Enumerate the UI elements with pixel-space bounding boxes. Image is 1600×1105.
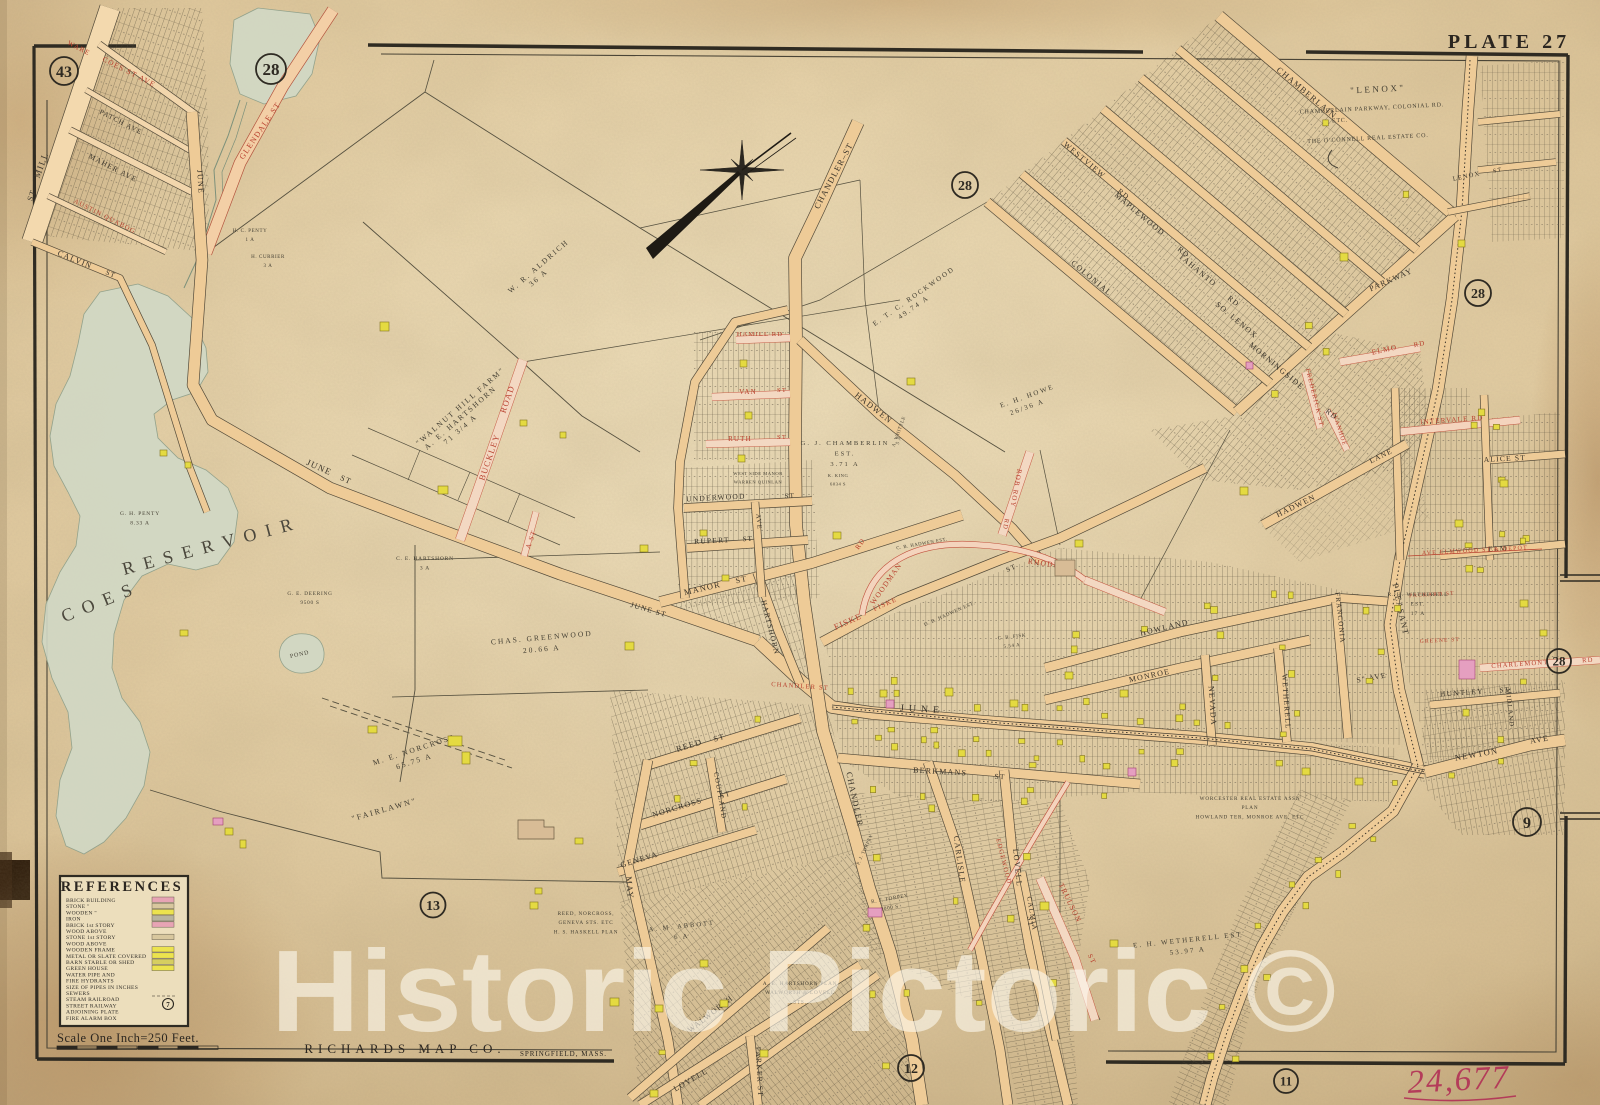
- svg-text:ST: ST: [784, 492, 795, 501]
- svg-text:ETC.: ETC.: [1332, 118, 1348, 125]
- svg-text:9: 9: [1523, 815, 1531, 832]
- svg-text:RUTH: RUTH: [728, 435, 752, 443]
- svg-text:BRICK BUILDING: BRICK BUILDING: [66, 898, 116, 904]
- svg-text:STONE 1st STORY: STONE 1st STORY: [66, 935, 116, 941]
- svg-text:JUNE: JUNE: [195, 169, 206, 194]
- svg-text:G. J. CHAMBERLIN: G. J. CHAMBERLIN: [801, 440, 890, 447]
- svg-text:ST: ST: [742, 535, 753, 544]
- svg-text:Historic Pictoric ©: Historic Pictoric ©: [271, 926, 1336, 1056]
- svg-text:HOWLAND TER, MONROE AVE, ETC: HOWLAND TER, MONROE AVE, ETC: [1196, 814, 1305, 820]
- svg-text:EST.: EST.: [835, 451, 856, 458]
- svg-text:8.33 A: 8.33 A: [130, 521, 149, 527]
- svg-text:SIZE OF PIPES IN INCHES: SIZE OF PIPES IN INCHES: [66, 985, 138, 991]
- svg-text:ST: ST: [994, 772, 1006, 782]
- svg-text:WOOD ABOVE: WOOD ABOVE: [66, 929, 107, 935]
- svg-text:3.71 A: 3.71 A: [830, 461, 859, 468]
- svg-text:PLATE 27: PLATE 27: [1448, 31, 1570, 53]
- svg-text:WATER PIPE AND: WATER PIPE AND: [66, 972, 115, 978]
- svg-text:STREET RAILWAY: STREET RAILWAY: [66, 1003, 117, 1009]
- svg-text:HAMILL RD: HAMILL RD: [737, 331, 784, 338]
- svg-text:11: 11: [1280, 1074, 1292, 1089]
- svg-text:1 A: 1 A: [246, 238, 255, 243]
- svg-text:AVE: AVE: [754, 514, 762, 531]
- svg-text:WOODEN FRAME: WOODEN FRAME: [66, 948, 115, 954]
- svg-text:FIRE ALARM BOX: FIRE ALARM BOX: [66, 1016, 117, 1022]
- svg-text:43: 43: [56, 64, 72, 81]
- svg-text:WEST SIDE MANOR: WEST SIDE MANOR: [733, 471, 783, 476]
- svg-text:28: 28: [263, 60, 280, 79]
- svg-text:ST: ST: [777, 434, 787, 441]
- svg-text:REFERENCES: REFERENCES: [61, 879, 184, 895]
- svg-text:28: 28: [1553, 654, 1567, 669]
- svg-text:H. C. PENTY: H. C. PENTY: [233, 229, 268, 234]
- svg-text:H. CURRIER: H. CURRIER: [251, 255, 285, 260]
- svg-text:RD: RD: [1582, 657, 1594, 665]
- svg-text:G. E. DEERING: G. E. DEERING: [287, 591, 332, 597]
- svg-text:7: 7: [166, 1001, 170, 1009]
- svg-text:C. E. HARTSHORN: C. E. HARTSHORN: [396, 556, 454, 562]
- svg-text:G. H. PENTY: G. H. PENTY: [120, 511, 160, 517]
- svg-text:ST: ST: [777, 387, 787, 394]
- svg-text:WARREN QUINLAN: WARREN QUINLAN: [734, 480, 783, 485]
- svg-text:3 A: 3 A: [420, 566, 430, 572]
- svg-text:6034 S: 6034 S: [830, 482, 846, 487]
- svg-text:STEAM RAILROAD: STEAM RAILROAD: [66, 997, 119, 1003]
- svg-text:9500 S: 9500 S: [300, 600, 319, 606]
- svg-text:28: 28: [958, 179, 972, 194]
- svg-text:STONE ": STONE ": [66, 904, 90, 910]
- svg-text:VAN: VAN: [739, 388, 757, 396]
- svg-text:GREEN HOUSE: GREEN HOUSE: [66, 966, 108, 972]
- svg-text:BARN STABLE OR SHED: BARN STABLE OR SHED: [66, 960, 135, 966]
- svg-text:ADJOINING PLATE: ADJOINING PLATE: [66, 1010, 119, 1016]
- svg-text:EST.: EST.: [1411, 602, 1426, 608]
- svg-text:12: 12: [904, 1062, 918, 1077]
- svg-text:28: 28: [1471, 287, 1485, 302]
- svg-text:24,677: 24,677: [1407, 1060, 1511, 1101]
- svg-text:SEWERS: SEWERS: [66, 991, 90, 997]
- svg-text:WORCESTER REAL ESTATE ASSN: WORCESTER REAL ESTATE ASSN: [1200, 796, 1301, 802]
- svg-text:WOOD ABOVE: WOOD ABOVE: [66, 941, 107, 947]
- svg-text:R. H. WETHERELL: R. H. WETHERELL: [1387, 592, 1448, 598]
- svg-text:REED, NORCROSS,: REED, NORCROSS,: [558, 911, 615, 917]
- svg-text:13: 13: [426, 899, 440, 914]
- svg-text:FIRE HYDRANTS: FIRE HYDRANTS: [66, 979, 114, 985]
- svg-text:3 A: 3 A: [264, 264, 273, 269]
- svg-text:METAL OR SLATE COVERED: METAL OR SLATE COVERED: [66, 954, 146, 960]
- svg-text:WOODEN ": WOODEN ": [66, 910, 97, 916]
- svg-text:PLAN: PLAN: [1242, 805, 1259, 811]
- svg-text:IRON: IRON: [66, 917, 81, 923]
- svg-text:K. KING: K. KING: [828, 473, 849, 478]
- svg-text:Scale One Inch=250 Feet.: Scale One Inch=250 Feet.: [57, 1031, 199, 1045]
- svg-text:RUPERT: RUPERT: [694, 535, 730, 546]
- svg-text:17 A: 17 A: [1411, 611, 1426, 617]
- svg-text:J U N E: J U N E: [900, 703, 941, 716]
- svg-text:BRICK 1st STORY: BRICK 1st STORY: [66, 923, 115, 929]
